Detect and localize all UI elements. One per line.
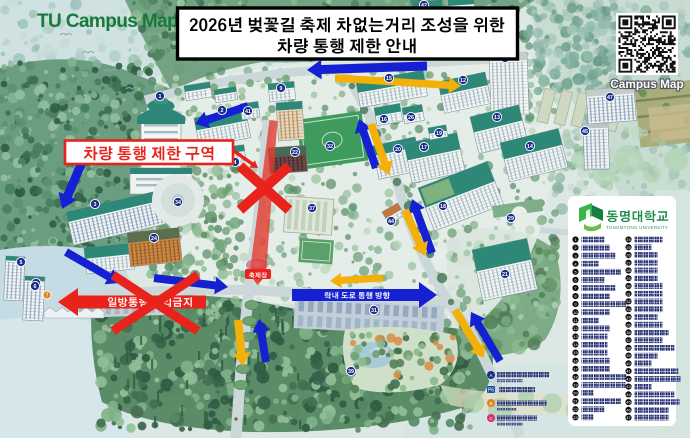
svg-text:30: 30 (626, 284, 631, 289)
svg-text:39: 39 (626, 353, 631, 358)
svg-text:15: 15 (386, 76, 392, 82)
svg-text:45: 45 (582, 129, 588, 135)
svg-text:29: 29 (626, 276, 631, 281)
svg-text:17: 17 (421, 145, 427, 151)
svg-text:26: 26 (408, 115, 414, 121)
svg-text:31: 31 (371, 308, 377, 314)
svg-text:9: 9 (280, 86, 283, 92)
svg-text:22: 22 (573, 407, 578, 412)
svg-text:1: 1 (159, 94, 162, 100)
svg-text:40: 40 (626, 361, 631, 366)
svg-text:22: 22 (292, 150, 298, 156)
svg-text:47: 47 (626, 415, 631, 420)
svg-text:29: 29 (508, 216, 514, 222)
svg-text:16: 16 (381, 117, 387, 123)
svg-text:32: 32 (626, 299, 631, 304)
svg-text:35: 35 (626, 322, 631, 327)
svg-text:45: 45 (626, 400, 631, 405)
svg-text:34: 34 (626, 315, 631, 320)
svg-text:18: 18 (573, 375, 578, 380)
svg-text:36: 36 (626, 330, 631, 335)
svg-text:44: 44 (626, 392, 631, 397)
svg-text:28: 28 (626, 268, 631, 273)
svg-text:2: 2 (221, 108, 224, 114)
svg-text:14: 14 (527, 144, 533, 150)
svg-text:46: 46 (626, 408, 631, 413)
svg-text:TONGMYONG UNIVERSITY: TONGMYONG UNIVERSITY (606, 225, 668, 230)
svg-text:41: 41 (626, 369, 631, 374)
svg-text:21: 21 (573, 399, 578, 404)
svg-text:24: 24 (626, 237, 631, 242)
svg-text:10: 10 (573, 310, 578, 315)
svg-text:42: 42 (626, 377, 631, 382)
svg-text:12: 12 (573, 326, 578, 331)
svg-text:19: 19 (573, 383, 578, 388)
svg-text:25: 25 (626, 245, 631, 250)
svg-text:16: 16 (573, 358, 578, 363)
svg-text:23: 23 (573, 415, 578, 420)
svg-text:39: 39 (348, 369, 354, 375)
svg-text:17: 17 (573, 366, 578, 371)
svg-text:19: 19 (436, 131, 442, 137)
svg-text:32: 32 (327, 144, 333, 150)
svg-text:13: 13 (573, 334, 578, 339)
svg-text:26: 26 (626, 253, 631, 258)
svg-text:34: 34 (175, 200, 181, 206)
svg-text:24: 24 (151, 236, 157, 242)
svg-text:20: 20 (395, 147, 401, 153)
svg-text:18: 18 (440, 204, 446, 210)
svg-text:15: 15 (573, 350, 578, 355)
svg-text:43: 43 (626, 384, 631, 389)
svg-text:37: 37 (626, 338, 631, 343)
svg-text:5: 5 (20, 260, 23, 266)
svg-text:27: 27 (626, 260, 631, 265)
svg-text:44: 44 (388, 219, 394, 225)
svg-text:P6: P6 (488, 388, 494, 394)
svg-text:TU Campus Map: TU Campus Map (37, 11, 178, 32)
svg-text:33: 33 (626, 307, 631, 312)
svg-text:37: 37 (309, 206, 315, 212)
svg-text:13: 13 (494, 115, 500, 121)
svg-text:Campus Map: Campus Map (610, 77, 683, 91)
svg-text:3: 3 (94, 202, 97, 208)
svg-text:21: 21 (502, 272, 508, 278)
svg-text:B: B (489, 401, 492, 406)
svg-text:12: 12 (460, 78, 466, 84)
svg-text:6: 6 (34, 284, 37, 290)
svg-text:41: 41 (245, 109, 251, 115)
svg-text:38: 38 (626, 346, 631, 351)
svg-text:7: 7 (46, 293, 49, 299)
svg-text:14: 14 (573, 342, 578, 347)
svg-text:47: 47 (607, 95, 613, 101)
svg-text:20: 20 (573, 391, 578, 396)
svg-text:31: 31 (626, 291, 631, 296)
